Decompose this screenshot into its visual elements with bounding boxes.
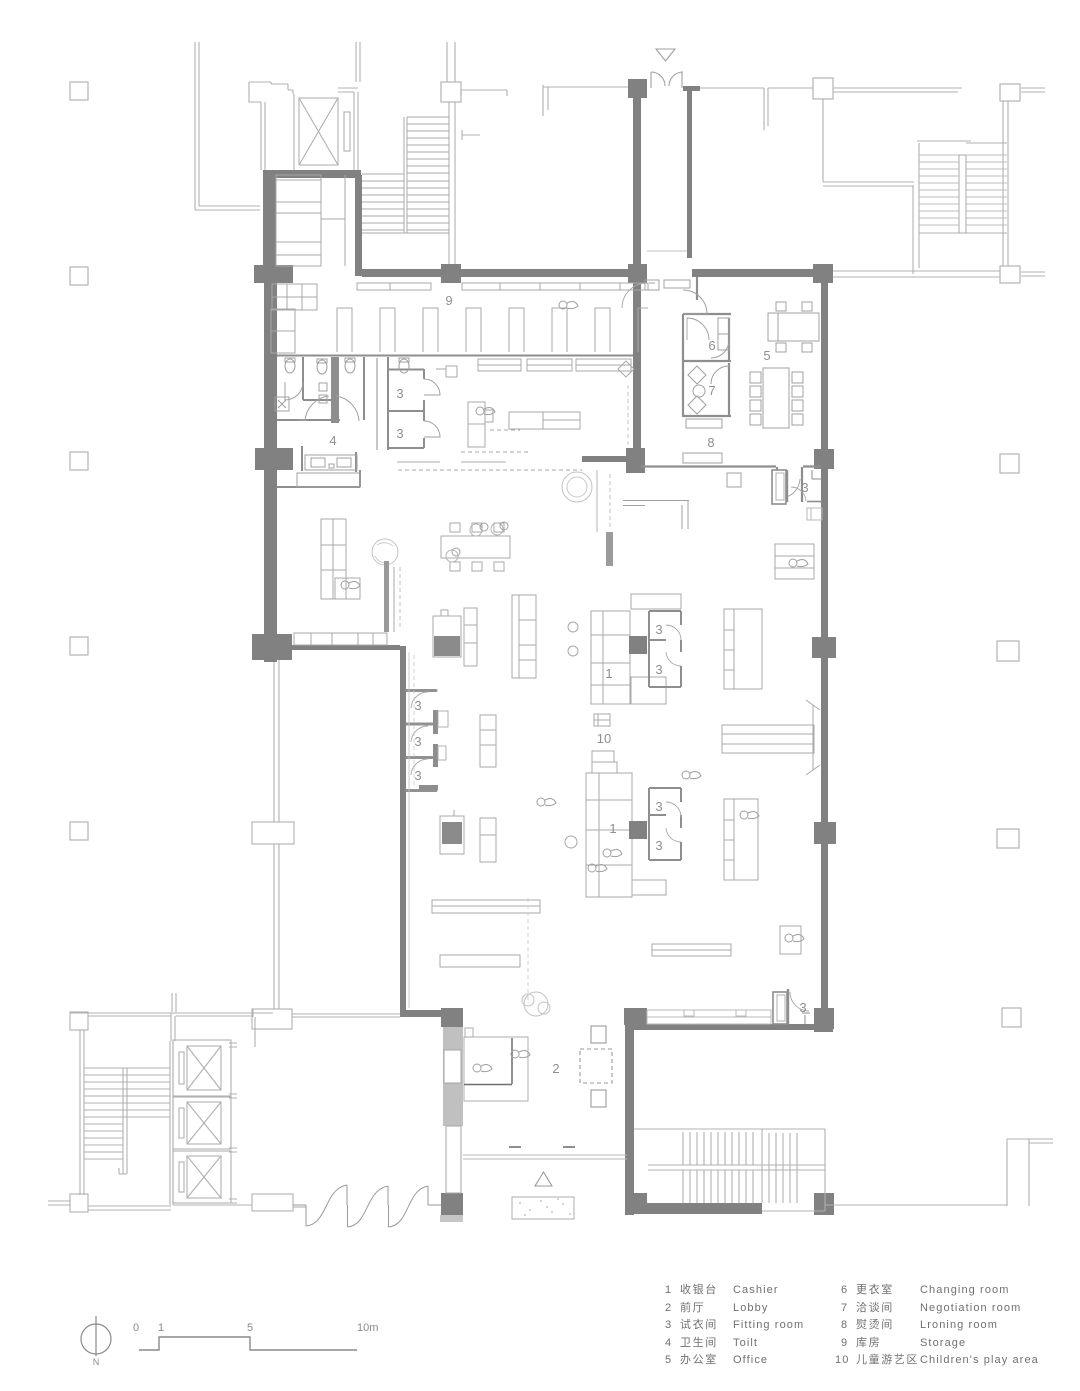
svg-text:0: 0 — [133, 1322, 139, 1334]
svg-text:Lobby: Lobby — [733, 1302, 768, 1314]
svg-text:7: 7 — [841, 1302, 848, 1314]
svg-text:8: 8 — [841, 1319, 848, 1331]
svg-text:3: 3 — [665, 1319, 672, 1331]
svg-text:1: 1 — [609, 821, 616, 836]
svg-text:3: 3 — [655, 799, 662, 814]
svg-text:6: 6 — [708, 338, 715, 353]
svg-text:7: 7 — [708, 383, 715, 398]
svg-text:5: 5 — [763, 348, 770, 363]
svg-text:3: 3 — [655, 662, 662, 677]
svg-text:3: 3 — [799, 1000, 806, 1015]
svg-text:2: 2 — [552, 1061, 559, 1076]
svg-text:3: 3 — [396, 426, 403, 441]
svg-text:收银台: 收银台 — [680, 1282, 718, 1296]
svg-text:Children's play area: Children's play area — [920, 1354, 1039, 1366]
svg-text:更衣室: 更衣室 — [856, 1282, 894, 1296]
svg-text:5: 5 — [665, 1354, 672, 1366]
svg-text:5: 5 — [247, 1322, 253, 1334]
svg-text:1: 1 — [605, 666, 612, 681]
svg-text:Fitting room: Fitting room — [733, 1319, 804, 1331]
svg-text:3: 3 — [655, 622, 662, 637]
svg-text:儿童游艺区: 儿童游艺区 — [856, 1352, 919, 1366]
svg-text:Cashier: Cashier — [733, 1284, 779, 1296]
svg-text:Lroning room: Lroning room — [920, 1319, 998, 1331]
svg-text:3: 3 — [414, 698, 421, 713]
svg-text:4: 4 — [329, 433, 336, 448]
svg-text:3: 3 — [414, 768, 421, 783]
svg-text:2: 2 — [665, 1302, 672, 1314]
svg-text:3: 3 — [414, 734, 421, 749]
svg-text:8: 8 — [707, 435, 714, 450]
svg-text:前厅: 前厅 — [680, 1300, 705, 1314]
svg-text:办公室: 办公室 — [680, 1352, 718, 1366]
svg-text:Toilt: Toilt — [733, 1337, 758, 1349]
svg-text:Changing room: Changing room — [920, 1284, 1010, 1296]
svg-text:卫生间: 卫生间 — [680, 1335, 718, 1349]
svg-text:熨烫间: 熨烫间 — [856, 1317, 894, 1331]
svg-text:库房: 库房 — [856, 1336, 881, 1349]
svg-text:6: 6 — [841, 1284, 848, 1296]
svg-text:试衣间: 试衣间 — [680, 1317, 718, 1331]
svg-text:Storage: Storage — [920, 1337, 966, 1349]
svg-text:3: 3 — [801, 480, 808, 495]
svg-text:10m: 10m — [357, 1322, 378, 1334]
svg-text:3: 3 — [396, 386, 403, 401]
svg-text:洽谈间: 洽谈间 — [856, 1301, 894, 1314]
svg-text:N: N — [93, 1357, 100, 1367]
svg-text:Office: Office — [733, 1354, 768, 1366]
svg-text:4: 4 — [665, 1337, 672, 1349]
svg-text:1: 1 — [158, 1322, 164, 1334]
svg-text:10: 10 — [835, 1354, 849, 1366]
svg-text:1: 1 — [665, 1284, 672, 1296]
svg-text:Negotiation room: Negotiation room — [920, 1302, 1021, 1314]
svg-text:3: 3 — [655, 838, 662, 853]
svg-text:10: 10 — [597, 731, 611, 746]
svg-text:9: 9 — [841, 1337, 848, 1349]
svg-text:9: 9 — [445, 293, 452, 308]
